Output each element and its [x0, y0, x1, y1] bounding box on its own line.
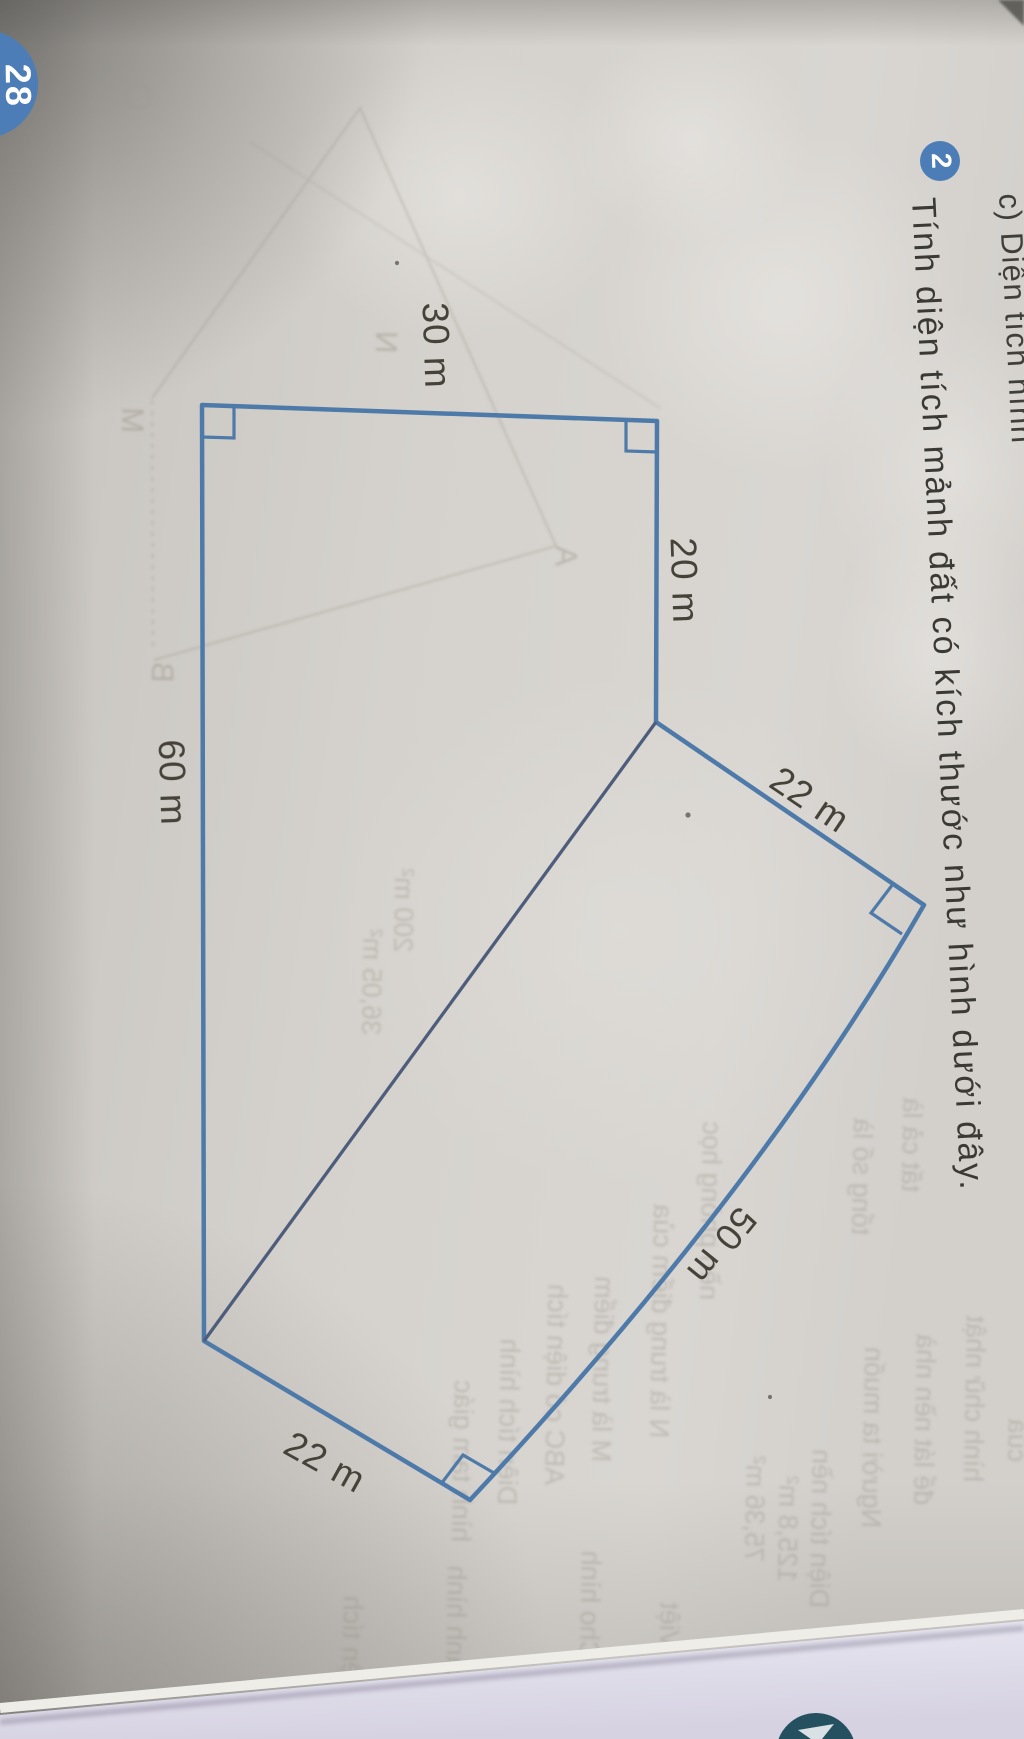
exercise-badge-number: 2 — [926, 152, 958, 169]
showthrough-letter: B — [145, 662, 180, 683]
svg-text:M là trung điểm: M là trung điểm — [586, 1276, 619, 1463]
dim-label-left: 60 m — [150, 739, 194, 827]
showthrough-letter: M — [115, 407, 150, 433]
svg-text:N là trung điểm của: N là trung điểm của — [644, 1203, 678, 1439]
dim-label-right: 20 m — [662, 537, 706, 625]
svg-text:tất cả là: tất cả là — [896, 1096, 928, 1192]
svg-text:125,8 m²: 125,8 m² — [772, 1475, 804, 1582]
svg-text:200 m²: 200 m² — [388, 868, 419, 953]
svg-text:36,05 m²: 36,05 m² — [356, 928, 388, 1035]
svg-text:của: của — [1002, 1417, 1024, 1462]
svg-text:ABC có diện tích: ABC có diện tích — [539, 1284, 573, 1486]
svg-text:Cho hình: Cho hình — [574, 1550, 606, 1660]
page-photo-canvas: M B A N 36,05 m² 200 m² hình tam giác Di… — [0, 0, 1024, 1739]
photographed-textbook-page: M B A N 36,05 m² 200 m² hình tam giác Di… — [0, 0, 1024, 1739]
svg-text:hình chữ nhật: hình chữ nhật — [958, 1315, 991, 1483]
exercise-badge: 2 — [920, 141, 960, 181]
svg-text:tổng số là: tổng số là — [846, 1117, 878, 1236]
svg-text:để lát nền nhà: để lát nền nhà — [908, 1333, 941, 1506]
dim-label-top: 30 m — [414, 302, 458, 390]
svg-text:Diện tích hình: Diện tích hình — [492, 1338, 525, 1505]
svg-text:Người ta muốn: Người ta muốn — [856, 1347, 889, 1529]
showthrough-letter: A — [549, 545, 584, 567]
svg-text:75,36 m²: 75,36 m² — [739, 1455, 771, 1562]
page-number: 28 — [0, 63, 39, 108]
svg-text:Diện tích nền: Diện tích nền — [804, 1449, 837, 1609]
showthrough-letter: N — [369, 331, 404, 354]
